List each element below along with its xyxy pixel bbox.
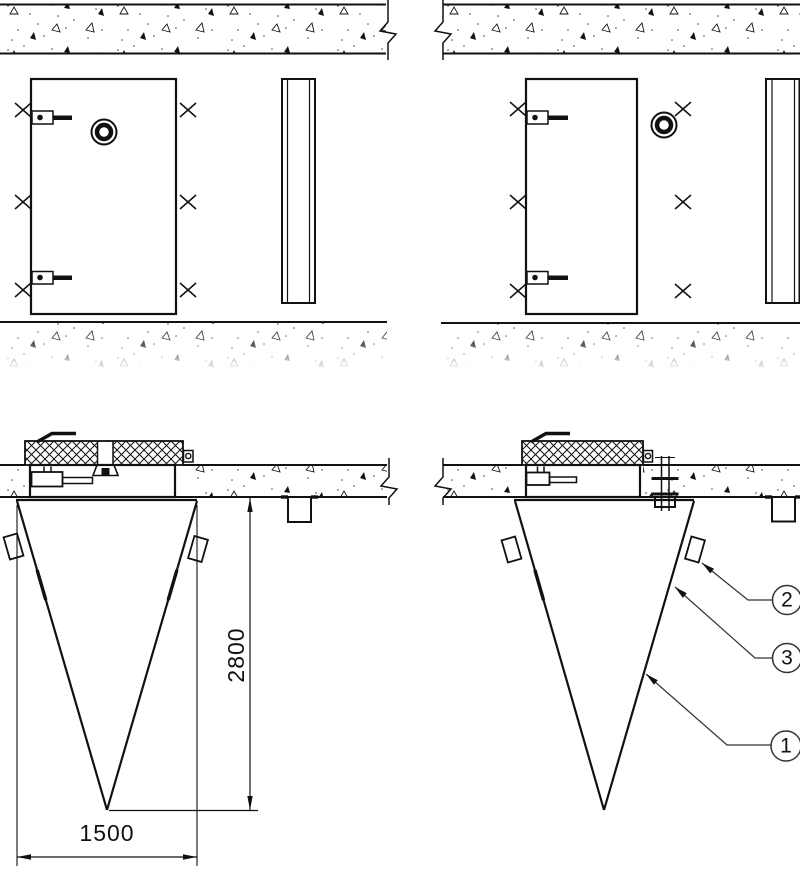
- concrete-texture: [0, 5, 388, 53]
- concrete-texture: [0, 323, 387, 373]
- callout-number: 2: [781, 589, 793, 612]
- steel-channel-profile: [766, 79, 800, 303]
- weld-seam-icon: [168, 570, 177, 600]
- frame-latch: [527, 473, 550, 486]
- downstand-beam: [281, 497, 318, 522]
- concrete-texture: [0, 466, 25, 496]
- callout-number: 1: [780, 735, 792, 758]
- floor-slab-band: [441, 323, 800, 374]
- callout-balloon-2: 2: [702, 563, 800, 615]
- hatch-cover-insulated: [25, 434, 193, 476]
- cone-bracket: [685, 537, 705, 563]
- leader-line: [646, 674, 771, 745]
- cone-bracket: [4, 534, 24, 560]
- elevation-view-right: [434, 0, 800, 374]
- dim-height-label: 2800: [223, 627, 249, 682]
- hatch-door-leaf: [31, 79, 176, 314]
- knob-icon: [92, 120, 117, 145]
- anchor-x-icon: [180, 103, 196, 117]
- hatch-frame: [526, 465, 640, 497]
- knob-icon: [652, 113, 677, 138]
- hatch-door-leaf: [526, 79, 637, 314]
- cover-latch-icon: [184, 451, 194, 463]
- technical-drawing: 2800 1500: [0, 0, 800, 880]
- anchor-x-icon: [510, 195, 526, 209]
- ceiling-slab-band: [434, 0, 800, 60]
- cone-hopper: [4, 500, 208, 810]
- concrete-texture: [183, 466, 387, 496]
- dim-width: 1500: [17, 505, 197, 866]
- hatch-cover-insulated: [522, 434, 653, 466]
- callout-number: 3: [781, 647, 793, 670]
- section-view-right: 2 3 1: [434, 434, 800, 811]
- cone-edge-right: [107, 501, 197, 810]
- cone-edge-left: [515, 501, 604, 810]
- frame-latch-bar: [63, 478, 93, 484]
- anchor-x-icon: [15, 195, 31, 209]
- frame-latch: [32, 472, 63, 487]
- anchor-x-icon: [15, 103, 31, 117]
- handle-slot: [98, 442, 114, 465]
- door-latch-top: [527, 111, 568, 124]
- anchor-x-icon: [180, 195, 196, 209]
- drawing-sheet: 2800 1500: [0, 0, 800, 880]
- concrete-texture: [441, 324, 800, 374]
- weld-seam-icon: [535, 570, 544, 600]
- anchor-x-icon: [180, 283, 196, 297]
- concrete-texture: [643, 466, 800, 496]
- fixing-marks: [15, 103, 196, 297]
- downstand-beam: [765, 497, 800, 522]
- cone-hopper: [502, 500, 705, 810]
- ceiling-slab-band: [0, 0, 400, 60]
- concrete-texture: [444, 466, 522, 496]
- cone-bracket: [188, 536, 208, 562]
- anchor-x-icon: [675, 284, 691, 298]
- section-view-left: 2800 1500: [0, 434, 400, 867]
- frame-latch-bar: [550, 477, 577, 483]
- door-latch-bottom: [527, 272, 568, 285]
- callouts: 2 3 1: [646, 563, 800, 761]
- weld-seam-icon: [37, 570, 46, 600]
- callout-balloon-1: 1: [646, 674, 800, 761]
- anchor-x-icon: [15, 283, 31, 297]
- anchor-x-icon: [510, 284, 526, 298]
- arrow-down-icon: [247, 796, 252, 810]
- insulation-crosshatch: [522, 441, 643, 465]
- elevation-view-left: [0, 0, 400, 373]
- arrow-left-icon: [17, 854, 31, 859]
- cone-edge-right: [604, 501, 694, 810]
- cone-edge-left: [17, 501, 107, 810]
- steel-channel-profile: [282, 79, 315, 303]
- anchor-x-icon: [675, 195, 691, 209]
- cover-latch-icon: [644, 451, 653, 463]
- anchor-x-icon: [510, 102, 526, 116]
- dim-width-label: 1500: [79, 820, 134, 846]
- arrow-up-icon: [247, 498, 252, 512]
- leader-line: [675, 587, 772, 658]
- concrete-texture: [443, 5, 800, 53]
- door-latch-top: [32, 111, 72, 124]
- door-latch-bottom: [32, 272, 72, 285]
- cone-bracket: [502, 537, 522, 563]
- floor-slab-band: [0, 322, 387, 373]
- anchor-x-icon: [675, 102, 691, 116]
- arrow-right-icon: [183, 854, 197, 859]
